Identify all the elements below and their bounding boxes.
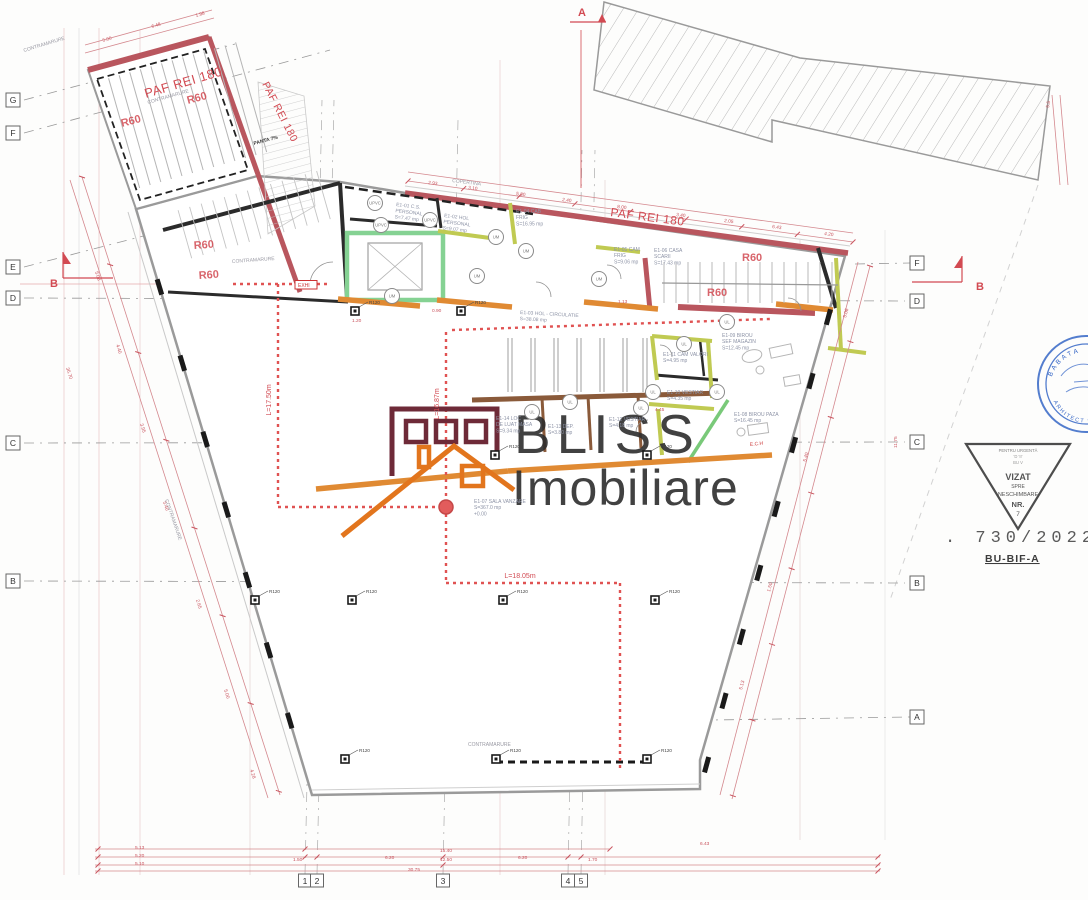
dim-label: 5.5 <box>1045 100 1052 108</box>
axis-label-bottom-2: 2 <box>315 876 320 886</box>
dim-label: 4.28 <box>248 769 257 780</box>
dim-label: 1.13 <box>618 299 628 305</box>
door-tag-ul: UL <box>638 406 644 411</box>
section-arrow-head <box>954 256 962 268</box>
axis-label-bottom-3: 3 <box>441 876 446 886</box>
dim-label: 2.93 <box>428 180 438 187</box>
wall-pilaster <box>739 629 743 644</box>
section-marker-b: B <box>976 281 984 293</box>
annotation-exhi: EXHI <box>298 283 310 289</box>
axis-label-bottom-1: 1 <box>303 876 308 886</box>
dim-label: 6.20 <box>385 855 395 861</box>
evac-length-label: L=16.87m <box>434 388 441 419</box>
annotation-contramarure: CONTRAMARURE <box>468 742 511 748</box>
dim-label: 3.95 <box>138 423 147 434</box>
axis-label-bottom-4: 4 <box>566 876 571 886</box>
door-tag-upvc: UPVC <box>424 218 436 223</box>
round-stamp-signature-scribble <box>1061 364 1088 394</box>
r120-square-dot <box>344 758 347 761</box>
dim-label: 30.75 <box>408 867 420 873</box>
door-tag-um: UM <box>389 294 396 299</box>
triangle-stamp-tiny-line1: PENTRU URGENTĂ <box>999 448 1038 453</box>
dim-label: 5.20 <box>135 853 145 859</box>
dim-label: 6.48 <box>151 21 162 29</box>
dim-label: 2.40 <box>562 197 572 204</box>
r120-square-dot <box>495 758 498 761</box>
door-tag-um: UM <box>474 274 481 279</box>
r120-square-dot <box>460 310 463 313</box>
r120-square-dot <box>646 454 649 457</box>
dim-label: 1.98 <box>195 10 206 18</box>
neighbor-building-hatch <box>594 2 1050 180</box>
r120-square-dot <box>354 310 357 313</box>
dim-label: 6.20 <box>518 855 528 861</box>
r120-square-dot <box>654 599 657 602</box>
dim-label: 36.70 <box>64 367 74 381</box>
dim-label: 2.65 <box>194 599 203 610</box>
axis-label-right-C: C <box>914 437 920 447</box>
r120-label: R120 <box>359 748 370 753</box>
dim-label: 4.20 <box>824 231 834 238</box>
section-arrow-head <box>63 252 71 264</box>
triangle-stamp-neschimbare: NESCHIMBARE <box>998 492 1039 498</box>
axis-label-left-F: F <box>10 128 15 138</box>
dim-label: 5.08 <box>93 271 102 282</box>
logo-word-bliss: BLISS <box>514 403 700 465</box>
axis-label-left-C: C <box>10 438 16 448</box>
door-tag-ul: UL <box>567 400 573 405</box>
access-ramp <box>258 82 315 234</box>
door-tag-um: UM <box>596 277 603 282</box>
door-tag-ul: UL <box>714 390 720 395</box>
r60-label: R60 <box>707 287 727 299</box>
dim-label: 4.40 <box>114 344 123 355</box>
evac-length-label: L=18.05m <box>504 573 535 580</box>
door-tag-um: UM <box>493 235 500 240</box>
axis-label-left-D: D <box>10 293 16 303</box>
door-tag-um: UM <box>523 249 530 254</box>
door-tag-upvc: UPVC <box>375 223 387 228</box>
grid-line-right-F <box>855 263 910 264</box>
triangle-vizat-stamp: PENTRU URGENTĂ 'D 'II' BU V VIZAT SPRE N… <box>945 444 1088 565</box>
annotation-copertina: COPERTINA <box>452 178 482 188</box>
triangle-stamp-nr: NR. <box>1012 500 1025 509</box>
dim-label: 15.40 <box>440 848 452 854</box>
floor-plan-page: GFEDCBFDCBA12345 <box>0 0 1088 900</box>
dim-label: 5.13 <box>738 680 746 691</box>
axis-label-left-B: B <box>10 576 16 586</box>
r60-label: R60 <box>198 269 219 282</box>
dim-label: 5.80 <box>516 191 526 198</box>
room-label: E1-13 DEP.S=3.80 mp <box>548 424 574 436</box>
triangle-stamp-vizat: VIZAT <box>1005 472 1031 482</box>
axis-label-bottom-5: 5 <box>579 876 584 886</box>
evac-length-label: L=17.50m <box>266 384 273 415</box>
dim-label: 1.50 <box>293 857 303 863</box>
axis-label-right-F: F <box>914 258 919 268</box>
wall-pilaster <box>757 565 761 580</box>
dim-label: 12.50 <box>440 857 452 863</box>
dim-label: 5.00 <box>222 689 231 700</box>
dim-label: 6.43 <box>700 841 710 847</box>
dim-label: 5.40 <box>802 452 810 463</box>
logo-word-imobiliare: Imobiliare <box>512 460 739 516</box>
r120-label: R120 <box>269 589 280 594</box>
dim-label: 11.75 <box>893 436 899 448</box>
dim-label: 5.10 <box>135 861 145 867</box>
triangle-stamp-tiny-line3: BU V <box>1013 460 1023 465</box>
annotation-contramarure: CONTRAMARURE <box>23 35 66 53</box>
door-tag-ul: UL <box>681 342 687 347</box>
dim-label: 1.70 <box>588 857 598 863</box>
annotation-contramarure: CONTRAMARURE <box>163 499 183 542</box>
triangle-stamp-tiny-line2: 'D 'II' <box>1014 454 1023 459</box>
r120-square-dot <box>502 599 505 602</box>
evacuation-node-marker <box>439 500 453 514</box>
dim-label: 4.45 <box>655 407 665 413</box>
r120-label: R120 <box>366 589 377 594</box>
door-tag-ul: UL <box>724 320 730 325</box>
r120-label: R120 <box>369 300 380 305</box>
r120-label: R120 <box>475 300 486 305</box>
r120-label: R120 <box>510 748 521 753</box>
r120-label: R120 <box>661 748 672 753</box>
r120-square-dot <box>646 758 649 761</box>
wall-pilaster <box>722 693 726 708</box>
axis-label-right-B: B <box>914 578 920 588</box>
round-architect-stamp: BABATA ARHITECT DIPL. <box>1038 336 1088 432</box>
dim-label: 0.90 <box>432 308 442 314</box>
stamp-number: . 730/2022 . <box>945 529 1088 548</box>
r120-label: R120 <box>661 444 672 449</box>
axis-label-left-E: E <box>10 262 16 272</box>
axis-label-right-A: A <box>914 712 920 722</box>
floor-plan-drawing: GFEDCBFDCBA12345 <box>0 0 1088 900</box>
r120-label: R120 <box>517 589 528 594</box>
stamp-code: BU-BIF-A <box>985 553 1040 565</box>
section-marker-b: B <box>50 278 58 290</box>
door-tag-ul: UL <box>650 390 656 395</box>
axis-label-right-D: D <box>914 296 920 306</box>
axis-label-left-G: G <box>10 95 17 105</box>
dim-label: 5.08 <box>842 308 850 319</box>
triangle-stamp-nr-value: 7 <box>1016 511 1020 518</box>
dim-label: 5.00 <box>102 35 113 43</box>
section-marker-a: A <box>578 7 586 19</box>
r120-label: R120 <box>509 444 520 449</box>
wall-pilaster <box>704 757 708 772</box>
dim-label: 1.20 <box>352 318 362 324</box>
r120-square-dot <box>494 454 497 457</box>
door-tag-upvc: UPVC <box>369 201 381 206</box>
r120-square-dot <box>351 599 354 602</box>
r60-label: R60 <box>193 239 214 252</box>
dim-label: 6.43 <box>772 224 782 231</box>
dim-label: 5.13 <box>135 845 145 851</box>
r120-label: R120 <box>669 589 680 594</box>
r120-square-dot <box>254 599 257 602</box>
r60-label: R60 <box>742 252 762 264</box>
triangle-stamp-spre: SPRE <box>1011 484 1025 490</box>
door-tag-ul: UL <box>529 410 535 415</box>
